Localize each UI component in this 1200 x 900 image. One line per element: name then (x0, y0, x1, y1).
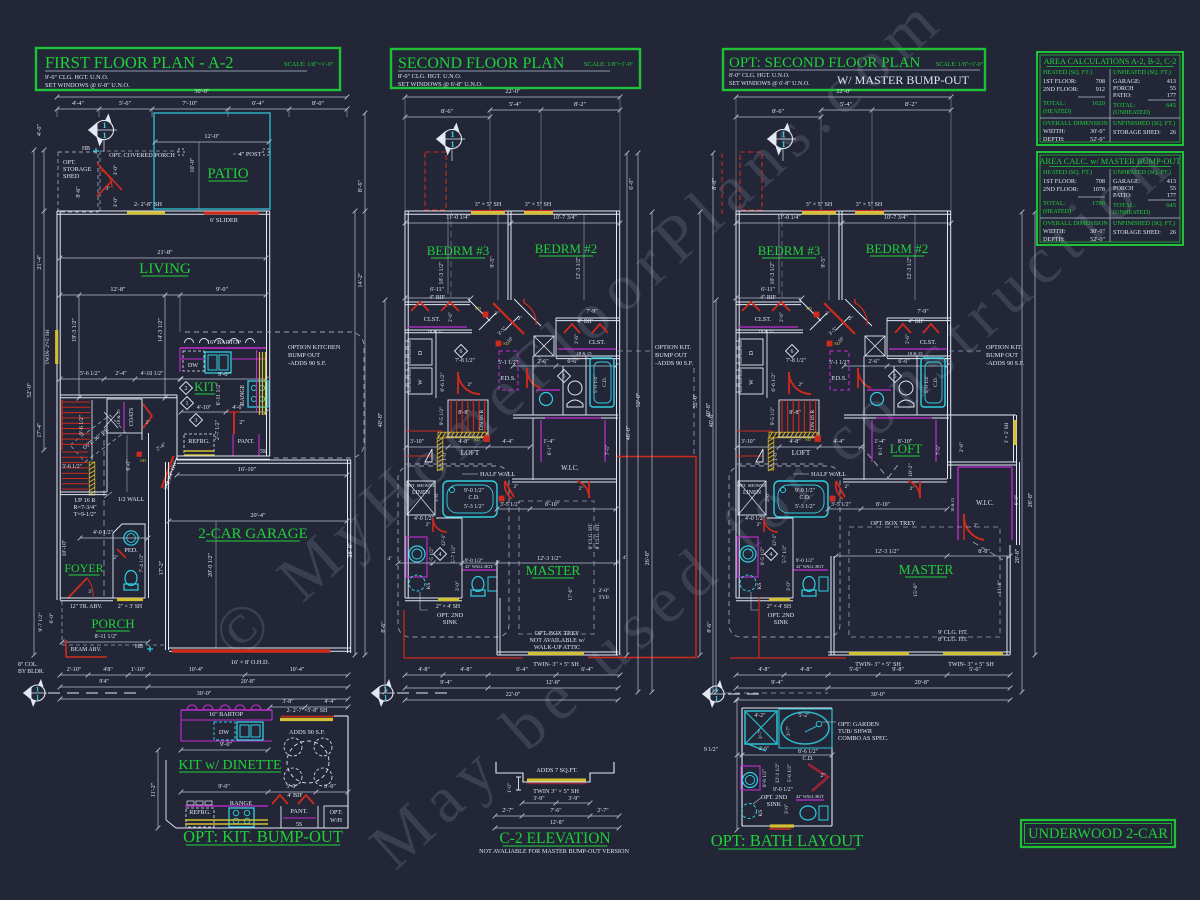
svg-text:3'-9": 3'-9" (533, 796, 544, 802)
svg-text:OPT: BATH LAYOUT: OPT: BATH LAYOUT (711, 831, 864, 850)
svg-text:6'-4": 6'-4" (516, 667, 528, 673)
svg-text:1: 1 (102, 130, 106, 140)
svg-text:2- 2'-8" SH: 2- 2'-8" SH (134, 201, 163, 208)
svg-text:OPT. SHOWER: OPT. SHOWER (737, 483, 768, 488)
svg-text:5'-1 1/2": 5'-1 1/2" (498, 360, 518, 366)
svg-text:17'-2": 17'-2" (159, 560, 165, 575)
svg-text:BEAM ABV.: BEAM ABV. (71, 647, 102, 653)
svg-text:2": 2" (799, 382, 804, 388)
svg-text:TUB/ SHWR: TUB/ SHWR (838, 728, 873, 735)
svg-text:SECOND FLOOR PLAN: SECOND FLOOR PLAN (398, 55, 565, 72)
svg-text:8'-6": 8'-6" (381, 621, 387, 632)
svg-text:WIDTH:: WIDTH: (1043, 128, 1066, 135)
svg-text:46'-0": 46'-0" (626, 425, 632, 440)
svg-text:2" × 4' SH: 2" × 4' SH (767, 604, 792, 610)
svg-text:UNHEATED (SQ. FT.): UNHEATED (SQ. FT.) (1113, 169, 1171, 176)
svg-text:10'-4": 10'-4" (290, 667, 305, 673)
svg-text:1786: 1786 (1092, 200, 1106, 207)
svg-text:CLST.: CLST. (424, 316, 441, 323)
svg-text:7'-6": 7'-6" (550, 808, 561, 814)
svg-text:REFRG.: REFRG. (189, 809, 211, 816)
svg-text:12'-3 1/2": 12'-3 1/2" (875, 549, 899, 555)
svg-text:HB: HB (82, 146, 90, 152)
svg-text:C.D.: C.D. (803, 756, 815, 762)
svg-text:20'-4": 20'-4" (250, 512, 266, 519)
svg-text:3'-0": 3'-0" (324, 784, 336, 790)
svg-text:21'-8": 21'-8" (157, 249, 173, 256)
svg-text:9'-6 1/2": 9'-6 1/2" (79, 415, 85, 435)
svg-text:KS: KS (426, 583, 432, 590)
svg-text:10'-7 3/4": 10'-7 3/4" (884, 215, 908, 221)
svg-text:3": 3" (106, 186, 111, 192)
svg-text:OPT: SECOND FLOOR PLAN: OPT: SECOND FLOOR PLAN (729, 55, 921, 71)
svg-text:9'-0": 9'-0" (220, 741, 232, 748)
svg-text:PANT.: PANT. (290, 808, 308, 815)
svg-text:UP 16 R: UP 16 R (74, 497, 96, 504)
svg-text:4'-4": 4'-4" (324, 699, 335, 705)
svg-text:BUMP OUT: BUMP OUT (986, 352, 1018, 359)
svg-text:9 1/2": 9 1/2" (704, 747, 718, 753)
svg-text:8'-0" CLG. HGT. U.N.O.: 8'-0" CLG. HGT. U.N.O. (398, 73, 462, 80)
svg-text:CLST.: CLST. (589, 339, 606, 346)
svg-text:2'-7 1/2": 2'-7 1/2" (215, 420, 221, 440)
svg-text:7'-4 1/2": 7'-4 1/2" (139, 554, 145, 573)
svg-text:8'-0": 8'-0" (312, 100, 325, 107)
svg-text:5'-0": 5'-0" (286, 784, 298, 790)
svg-text:STORAGE: STORAGE (63, 166, 92, 173)
svg-text:PORCH: PORCH (1113, 185, 1134, 192)
svg-text:5'-0 1/4": 5'-0 1/4" (593, 375, 599, 393)
svg-text:SHED: SHED (63, 173, 80, 180)
svg-text:BEDRM #3: BEDRM #3 (427, 243, 489, 258)
svg-text:6'-1": 6'-1" (878, 445, 884, 455)
svg-text:SET WINDOWS @ 6'-8" U.N.O.: SET WINDOWS @ 6'-8" U.N.O. (45, 82, 130, 89)
svg-text:WALK-UP ATTIC: WALK-UP ATTIC (534, 644, 580, 651)
svg-text:PATIO:: PATIO: (1113, 92, 1132, 99)
svg-text:3': 3' (88, 589, 92, 595)
svg-text:UNFINISHED (SQ. FT.): UNFINISHED (SQ. FT.) (1113, 120, 1175, 127)
svg-text:7'-9": 7'-9" (586, 309, 597, 315)
svg-text:STORAGE SHED:: STORAGE SHED: (1113, 229, 1161, 236)
svg-text:SCALE: 1/8"=1'-0": SCALE: 1/8"=1'-0" (936, 62, 984, 68)
svg-text:OPTION KIT.: OPTION KIT. (655, 344, 692, 351)
svg-text:HALF WALL: HALF WALL (480, 471, 516, 478)
svg-text:DEPTH:: DEPTH: (1043, 136, 1065, 143)
svg-text:LOFT: LOFT (792, 448, 811, 457)
svg-text:4: 4 (439, 552, 442, 558)
svg-text:7'-9": 7'-9" (917, 309, 928, 315)
svg-text:8'-10": 8'-10" (545, 502, 559, 508)
svg-text:708: 708 (1096, 78, 1105, 85)
svg-text:26'-8": 26'-8" (645, 550, 651, 565)
svg-text:1: 1 (102, 120, 106, 130)
svg-text:9' CLG. HT.: 9' CLG. HT. (588, 523, 594, 550)
svg-text:KS: KS (757, 583, 763, 590)
svg-text:2: 2 (185, 386, 188, 392)
svg-text:30'-0": 30'-0" (871, 692, 886, 698)
svg-text:1'-0": 1'-0" (442, 451, 448, 461)
svg-text:9'-0 1/2": 9'-0 1/2" (773, 787, 793, 793)
svg-text:11'-2": 11'-2" (151, 782, 157, 797)
svg-text:3" × 5" SH: 3" × 5" SH (525, 202, 552, 208)
svg-text:DN 16 R: DN 16 R (479, 410, 485, 430)
svg-text:1: 1 (781, 129, 785, 139)
svg-text:1: 1 (186, 401, 189, 407)
svg-text:26: 26 (1170, 229, 1176, 236)
svg-text:5'-7 1/2": 5'-7 1/2" (782, 545, 788, 563)
svg-text:LINEN: LINEN (412, 490, 431, 496)
svg-text:COMBO AS SPEC.: COMBO AS SPEC. (838, 735, 889, 742)
svg-text:8'-6": 8'-6" (441, 108, 454, 115)
svg-text:WIDTH:: WIDTH: (1043, 228, 1066, 235)
svg-text:2ND FLOOR:: 2ND FLOOR: (1043, 86, 1079, 93)
svg-text:8'-2": 8'-2" (574, 101, 587, 108)
svg-text:26: 26 (1170, 129, 1176, 136)
svg-text:3" × 5" SH: 3" × 5" SH (806, 202, 833, 208)
svg-text:CLST.: CLST. (755, 316, 772, 323)
svg-text:2'-7": 2'-7" (502, 808, 513, 814)
svg-text:7'-5": 7'-5" (605, 445, 611, 455)
svg-text:20'-8": 20'-8" (915, 680, 930, 686)
svg-text:20'-8": 20'-8" (241, 679, 256, 685)
svg-text:3'-5 1/2": 3'-5 1/2" (831, 502, 851, 508)
svg-text:912: 912 (1096, 86, 1105, 93)
svg-text:3'-8": 3'-8" (282, 699, 293, 705)
svg-text:6'-11": 6'-11" (761, 287, 775, 293)
svg-text:UNHEATED (SQ. FT.): UNHEATED (SQ. FT.) (1113, 69, 1171, 76)
svg-text:3'-0": 3'-0" (784, 804, 790, 814)
svg-text:TWIN- 2'×5' SH: TWIN- 2'×5' SH (45, 329, 51, 364)
svg-text:OPT. BOX TREY: OPT. BOX TREY (871, 520, 917, 527)
svg-text:SET WINDOWS @ 6'-8" U.N.O.: SET WINDOWS @ 6'-8" U.N.O. (729, 81, 810, 87)
svg-text:4'-4": 4'-4" (833, 439, 844, 445)
svg-text:W: W (749, 379, 755, 385)
svg-text:D: D (749, 350, 755, 355)
svg-text:OPT. COVERED PORCH: OPT. COVERED PORCH (109, 152, 175, 159)
svg-text:177: 177 (1167, 192, 1176, 199)
svg-text:1620: 1620 (1092, 100, 1106, 107)
svg-text:OVERALL DIMENSION: OVERALL DIMENSION (1043, 120, 1108, 127)
svg-text:2": 2" (757, 522, 762, 528)
svg-text:5'-6 1/2": 5'-6 1/2" (80, 371, 100, 377)
svg-text:3'-9": 3'-9" (568, 796, 579, 802)
svg-text:AREA CALC. w/ MASTER BUMP-OUT: AREA CALC. w/ MASTER BUMP-OUT (1039, 157, 1180, 166)
svg-text:3: 3 (195, 418, 198, 424)
svg-text:4": 4" (388, 556, 393, 562)
svg-text:3'-0": 3'-0" (455, 581, 461, 591)
svg-text:SD: SD (140, 458, 147, 463)
svg-text:FOYER: FOYER (64, 561, 103, 575)
svg-text:PORCH: PORCH (91, 616, 134, 631)
svg-text:4'8": 4'8" (103, 667, 113, 673)
svg-text:6'-11": 6'-11" (430, 287, 444, 293)
svg-text:3'-6 1/2": 3'-6 1/2" (62, 464, 82, 470)
svg-text:2'-0": 2'-0" (599, 588, 610, 594)
svg-text:52'-0": 52'-0" (636, 392, 642, 407)
svg-text:OPT. 2ND: OPT. 2ND (761, 794, 788, 801)
svg-text:177: 177 (1167, 92, 1176, 99)
svg-text:6'-6": 6'-6" (898, 359, 909, 365)
svg-text:8'-10": 8'-10" (898, 439, 913, 445)
svg-text:12'-3 1/2": 12'-3 1/2" (576, 257, 582, 280)
svg-text:C.D.: C.D. (933, 377, 939, 387)
svg-text:TOTAL:: TOTAL: (1043, 100, 1066, 107)
svg-text:2": 2" (426, 522, 431, 528)
svg-text:2": 2" (514, 484, 519, 490)
svg-text:2- 2'-7"×5'-8" SH: 2- 2'-7"×5'-8" SH (287, 708, 328, 714)
svg-text:OPT. BOX TREY: OPT. BOX TREY (535, 630, 581, 637)
svg-text:52'-0": 52'-0" (693, 393, 699, 408)
svg-text:8'-6": 8'-6" (76, 186, 82, 197)
svg-text:9'-5": 9'-5" (821, 256, 827, 267)
svg-text:10'-4": 10'-4" (189, 667, 204, 673)
svg-text:2'-6": 2'-6" (905, 334, 911, 344)
svg-text:12'-3 1/2": 12'-3 1/2" (907, 257, 913, 280)
svg-text:OPT. SHOWER: OPT. SHOWER (406, 483, 437, 488)
svg-text:6' SLIDER: 6' SLIDER (210, 217, 239, 224)
svg-text:-ADDS 90 S.F.: -ADDS 90 S.F. (655, 360, 694, 367)
svg-text:14'-2": 14'-2" (357, 272, 364, 288)
svg-text:SINK: SINK (443, 619, 458, 626)
svg-text:D: D (418, 350, 424, 355)
svg-text:1'-0": 1'-0" (773, 451, 779, 461)
svg-text:10'-7 3/4": 10'-7 3/4" (553, 215, 577, 221)
svg-text:BY BLDR.: BY BLDR. (18, 669, 45, 675)
svg-text:12'-1 1/2": 12'-1 1/2" (775, 763, 781, 784)
svg-text:MASTER: MASTER (526, 563, 581, 578)
svg-text:8' CLG. HT.: 8' CLG. HT. (938, 637, 968, 643)
svg-text:COATS: COATS (129, 408, 135, 426)
svg-text:6'-6 1/2": 6'-6 1/2" (771, 372, 777, 391)
svg-text:12'-8": 12'-8" (546, 680, 561, 686)
svg-text:5'-4": 5'-4" (840, 101, 853, 108)
svg-text:1ST FLOOR:: 1ST FLOOR: (1043, 178, 1077, 185)
svg-text:2": 2" (495, 311, 500, 317)
svg-text:OPT. 2ND: OPT. 2ND (768, 612, 795, 619)
svg-text:9' CLG. HT.: 9' CLG. HT. (938, 630, 968, 636)
svg-text:9'-0": 9'-0" (218, 371, 231, 378)
svg-text:MASTER: MASTER (899, 562, 954, 577)
svg-text:5'-0 1/4": 5'-0 1/4" (924, 375, 930, 393)
svg-text:3'-7": 3'-7" (786, 726, 792, 736)
svg-text:(HEATED): (HEATED) (1043, 108, 1071, 115)
svg-text:4" BIF: 4" BIF (908, 319, 925, 325)
svg-text:3'-5 1/2": 3'-5 1/2" (500, 502, 520, 508)
svg-text:2'-6": 2'-6" (574, 334, 580, 344)
svg-text:1: 1 (36, 693, 40, 702)
svg-text:2": 2" (826, 311, 831, 317)
svg-text:2'-4": 2'-4" (115, 371, 126, 377)
svg-text:P.D.S.: P.D.S. (500, 375, 516, 382)
svg-text:2": 2" (820, 773, 825, 779)
svg-text:DW: DW (188, 362, 198, 369)
svg-text:30'-0": 30'-0" (194, 88, 210, 95)
svg-text:LOFT: LOFT (461, 448, 480, 457)
svg-text:4'-8": 4'-8" (758, 667, 770, 673)
svg-text:10'-0": 10'-0" (189, 157, 196, 173)
svg-text:22'-0": 22'-0" (505, 88, 521, 95)
svg-text:2": 2" (468, 382, 473, 388)
svg-text:C.D.: C.D. (469, 495, 481, 501)
svg-text:C.D.: C.D. (602, 377, 608, 387)
svg-text:4'-10": 4'-10" (197, 405, 212, 411)
svg-text:TWIN 3" × 5" SH: TWIN 3" × 5" SH (533, 788, 579, 795)
svg-text:40'-8": 40'-8" (709, 412, 715, 427)
svg-text:6: 6 (791, 349, 794, 355)
svg-text:8'-6": 8'-6" (707, 621, 713, 632)
svg-text:-ADDS 90 S.F.: -ADDS 90 S.F. (986, 360, 1025, 367)
svg-text:8'-8": 8'-8" (458, 410, 470, 416)
svg-text:8'-6": 8'-6" (357, 180, 364, 193)
svg-text:2": 2" (146, 420, 151, 426)
svg-text:4'-2": 4'-2" (754, 713, 765, 719)
svg-text:2" × 3' SH: 2" × 3' SH (118, 604, 143, 610)
svg-text:SD: SD (475, 306, 482, 311)
svg-text:2ND FLOOR:: 2ND FLOOR: (1043, 186, 1079, 193)
svg-text:FIRST FLOOR PLAN - A-2: FIRST FLOOR PLAN - A-2 (45, 53, 234, 72)
svg-text:8'-0" CLG. HGT. U.N.O.: 8'-0" CLG. HGT. U.N.O. (729, 73, 790, 79)
svg-text:BUMP OUT: BUMP OUT (655, 352, 687, 359)
svg-text:1'-0": 1'-0" (507, 783, 513, 793)
svg-text:TWIN- 3" × 5" SH: TWIN- 3" × 5" SH (533, 662, 579, 668)
svg-text:42" WALL HGT: 42" WALL HGT (465, 564, 493, 569)
svg-text:2'-6": 2'-6" (448, 312, 454, 322)
svg-text:4'-8": 4'-8" (789, 439, 800, 445)
svg-text:1: 1 (450, 139, 454, 149)
svg-text:16'-10": 16'-10" (238, 466, 257, 473)
svg-text:1'-4": 1'-4" (874, 439, 885, 445)
svg-text:10'-3 1/2": 10'-3 1/2" (770, 262, 776, 285)
svg-text:1: 1 (715, 694, 719, 703)
svg-text:DN 16 R: DN 16 R (810, 410, 816, 430)
svg-text:17'-4": 17'-4" (36, 422, 43, 438)
svg-text:5'-6": 5'-6" (849, 667, 861, 673)
svg-text:7'-10": 7'-10" (182, 100, 198, 107)
svg-text:3' × 5' SH: 3' × 5' SH (1004, 422, 1010, 443)
svg-text:NOT AVAILABLE w/: NOT AVAILABLE w/ (529, 637, 585, 644)
svg-text:55: 55 (1170, 85, 1176, 92)
svg-text:ADDS 90 S.F.: ADDS 90 S.F. (289, 729, 326, 736)
svg-text:15'-0": 15'-0" (913, 583, 919, 597)
svg-text:2'-6": 2'-6" (759, 746, 769, 752)
svg-text:1: 1 (781, 139, 785, 149)
svg-text:30'-0": 30'-0" (1090, 128, 1105, 135)
svg-text:HB: HB (135, 644, 143, 650)
svg-text:28'-8": 28'-8" (1028, 492, 1034, 507)
svg-text:PATIO: PATIO (207, 166, 248, 182)
svg-text:2": 2" (849, 316, 854, 322)
svg-text:5'-3 1/2": 5'-3 1/2" (795, 504, 815, 510)
svg-text:2'-10": 2'-10" (67, 667, 82, 673)
svg-text:SD: SD (474, 437, 481, 442)
svg-text:STORAGE SHED:: STORAGE SHED: (1113, 129, 1161, 136)
svg-text:4: 4 (770, 552, 773, 558)
svg-text:SD: SD (834, 341, 841, 346)
svg-text:2": 2" (579, 486, 584, 492)
svg-text:SCALE: 1/8"=1'-0": SCALE: 1/8"=1'-0" (284, 61, 334, 68)
svg-text:BEDRM #3: BEDRM #3 (758, 243, 820, 258)
svg-text:(UNHEATED): (UNHEATED) (1113, 109, 1150, 116)
svg-text:P.D.S.: P.D.S. (831, 375, 847, 382)
svg-text:645: 645 (1166, 202, 1177, 209)
svg-text:AREA CALCULATIONS A-2, B-2, C-: AREA CALCULATIONS A-2, B-2, C-2 (1044, 57, 1177, 66)
svg-text:8'-5 1/2": 8'-5 1/2" (760, 547, 766, 565)
svg-text:2'-6": 2'-6" (537, 359, 548, 365)
svg-text:1'-10": 1'-10" (131, 667, 146, 673)
svg-text:16" BARTOP: 16" BARTOP (209, 711, 244, 718)
svg-text:BEDRM #2: BEDRM #2 (866, 241, 928, 256)
svg-text:8'-0": 8'-0" (978, 549, 990, 555)
svg-text:4'-8": 4'-8" (460, 667, 472, 673)
svg-text:4'-10 1/2": 4'-10 1/2" (141, 371, 164, 377)
svg-text:17'-6": 17'-6" (568, 587, 574, 601)
svg-text:16" BARTOP: 16" BARTOP (207, 339, 242, 346)
svg-text:413: 413 (1167, 178, 1176, 185)
svg-text:4'-8": 4'-8" (418, 667, 430, 673)
svg-text:SINK: SINK (767, 801, 782, 808)
svg-text:55: 55 (1170, 185, 1176, 192)
svg-text:11'-0 1/4": 11'-0 1/4" (446, 215, 470, 221)
svg-text:OPT: GARDEN: OPT: GARDEN (838, 721, 880, 728)
svg-text:12'-1": 12'-1" (772, 534, 778, 547)
svg-text:16' × 8' O.H.D.: 16' × 8' O.H.D. (231, 659, 270, 666)
svg-text:2" × 4' SH: 2" × 4' SH (436, 604, 461, 610)
svg-text:T=9-1/2": T=9-1/2" (74, 511, 97, 518)
svg-text:PED.: PED. (124, 547, 138, 554)
svg-text:SET WINDOWS @ 6'-8" U.N.O.: SET WINDOWS @ 6'-8" U.N.O. (398, 81, 483, 88)
svg-text:NOT AVALIABLE FOR MASTER BUMP-: NOT AVALIABLE FOR MASTER BUMP-OUT VERSIO… (479, 848, 629, 855)
svg-text:3'-0": 3'-0" (786, 581, 792, 591)
svg-text:4'-0": 4'-0" (36, 124, 43, 137)
svg-text:9'-0": 9'-0" (218, 784, 230, 790)
svg-text:UNFINISHED (SQ. FT.): UNFINISHED (SQ. FT.) (1113, 220, 1175, 227)
svg-text:22'-0": 22'-0" (506, 692, 521, 698)
svg-text:2'-6": 2'-6" (959, 442, 965, 452)
svg-text:OPTION KITCHEN: OPTION KITCHEN (288, 344, 341, 351)
svg-text:30'-0": 30'-0" (1090, 228, 1105, 235)
svg-text:52'-0": 52'-0" (1090, 136, 1105, 143)
svg-text:2": 2" (114, 555, 119, 561)
svg-text:RANGE: RANGE (240, 384, 246, 405)
svg-text:1078: 1078 (1093, 186, 1105, 193)
svg-text:5'-4": 5'-4" (509, 101, 522, 108)
svg-text:4'-0 1/2": 4'-0 1/2" (745, 516, 765, 522)
svg-text:3'-10": 3'-10" (410, 439, 424, 445)
svg-text:6'-1": 6'-1" (547, 445, 553, 455)
svg-text:W/ MASTER BUMP-OUT: W/ MASTER BUMP-OUT (837, 73, 970, 87)
svg-text:GARAGE:: GARAGE: (1113, 178, 1141, 185)
svg-text:40'-8": 40'-8" (378, 412, 384, 427)
svg-text:12'-8": 12'-8" (550, 820, 564, 826)
svg-text:18 & 15: 18 & 15 (576, 351, 592, 356)
svg-text:W.I.C.: W.I.C. (561, 465, 579, 472)
svg-text:5'-3 1/2": 5'-3 1/2" (464, 504, 484, 510)
svg-text:12'-3 1/2": 12'-3 1/2" (537, 556, 561, 562)
svg-text:2'-6": 2'-6" (868, 359, 879, 365)
svg-text:42" WALL HGT: 42" WALL HGT (796, 794, 824, 799)
svg-text:9'-0 1/2": 9'-0 1/2" (464, 488, 484, 494)
svg-text:9'-0" CLG. HGT. U.N.O.: 9'-0" CLG. HGT. U.N.O. (45, 74, 109, 81)
svg-text:C.D.: C.D. (800, 495, 812, 501)
svg-text:22'-0": 22'-0" (836, 88, 852, 95)
svg-text:6'-0": 6'-0" (629, 178, 635, 190)
svg-text:4' BIF: 4' BIF (287, 792, 303, 799)
svg-text:708: 708 (1096, 178, 1105, 185)
svg-text:R=7-3/4": R=7-3/4" (73, 504, 97, 511)
svg-text:9'-0": 9'-0" (216, 286, 229, 293)
svg-text:TOTAL:: TOTAL: (1113, 102, 1136, 109)
svg-text:5'-6": 5'-6" (119, 100, 132, 107)
